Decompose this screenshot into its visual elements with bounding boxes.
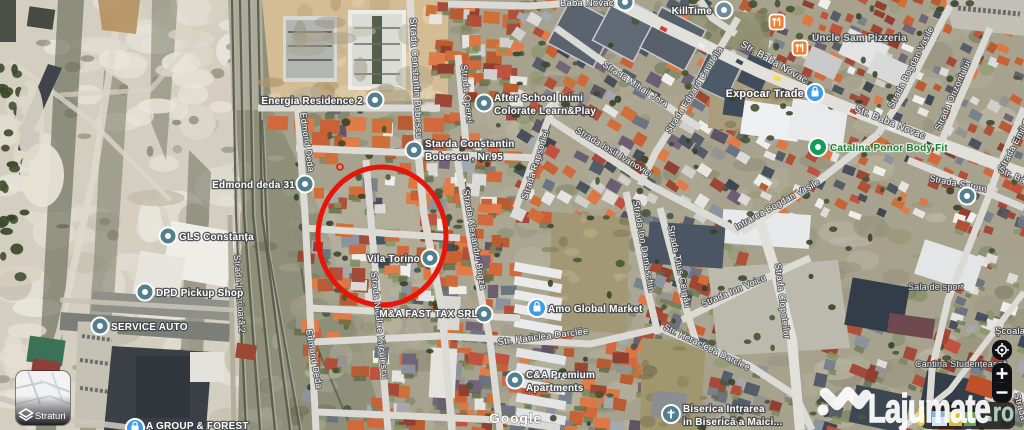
svg-text:Edmond deda 31: Edmond deda 31 <box>212 180 295 191</box>
svg-text:Catalina Ponor Body Fit: Catalina Ponor Body Fit <box>830 143 948 154</box>
svg-text:Colorate Learn&Play: Colorate Learn&Play <box>494 106 596 117</box>
svg-text:Biserica Intrarea: Biserica Intrarea <box>683 404 765 415</box>
svg-text:After School Inimi: After School Inimi <box>494 93 583 104</box>
svg-text:Starda Constantin: Starda Constantin <box>425 139 515 150</box>
svg-text:A GROUP & FOREST: A GROUP & FOREST <box>146 421 249 430</box>
svg-text:C&A Premium: C&A Premium <box>526 370 595 381</box>
svg-text:Amo Global Market: Amo Global Market <box>548 304 643 315</box>
svg-text:Sala de sport: Sala de sport <box>908 282 964 292</box>
svg-text:Vila Torino: Vila Torino <box>367 254 420 265</box>
svg-text:DPD Pickup Shop: DPD Pickup Shop <box>156 288 243 299</box>
svg-text:Bobescu , Nr.95: Bobescu , Nr.95 <box>425 152 503 163</box>
svg-text:Uncle Sam Pizzeria: Uncle Sam Pizzeria <box>812 33 907 44</box>
svg-text:Baba Novac: Baba Novac <box>560 0 614 9</box>
svg-text:Energia Residence 2: Energia Residence 2 <box>261 96 363 107</box>
svg-text:Lajumate: Lajumate <box>868 387 990 430</box>
svg-text:GLS Constanța: GLS Constanța <box>179 232 254 243</box>
svg-text:SERVICE AUTO: SERVICE AUTO <box>111 322 188 333</box>
svg-text:Apartments: Apartments <box>526 383 584 394</box>
svg-text:in Biserică a Maici...: in Biserică a Maici... <box>683 417 782 428</box>
svg-text:M&A FAST TAX SRL: M&A FAST TAX SRL <box>379 309 478 320</box>
svg-text:KillTime: KillTime <box>672 6 713 17</box>
svg-text:Google: Google <box>489 410 542 426</box>
svg-text:Expocar Trade: Expocar Trade <box>726 88 804 100</box>
svg-text:Straturi: Straturi <box>35 411 66 422</box>
svg-text:Şcoala: Şcoala <box>995 326 1024 337</box>
svg-text:.ro: .ro <box>987 397 1014 427</box>
